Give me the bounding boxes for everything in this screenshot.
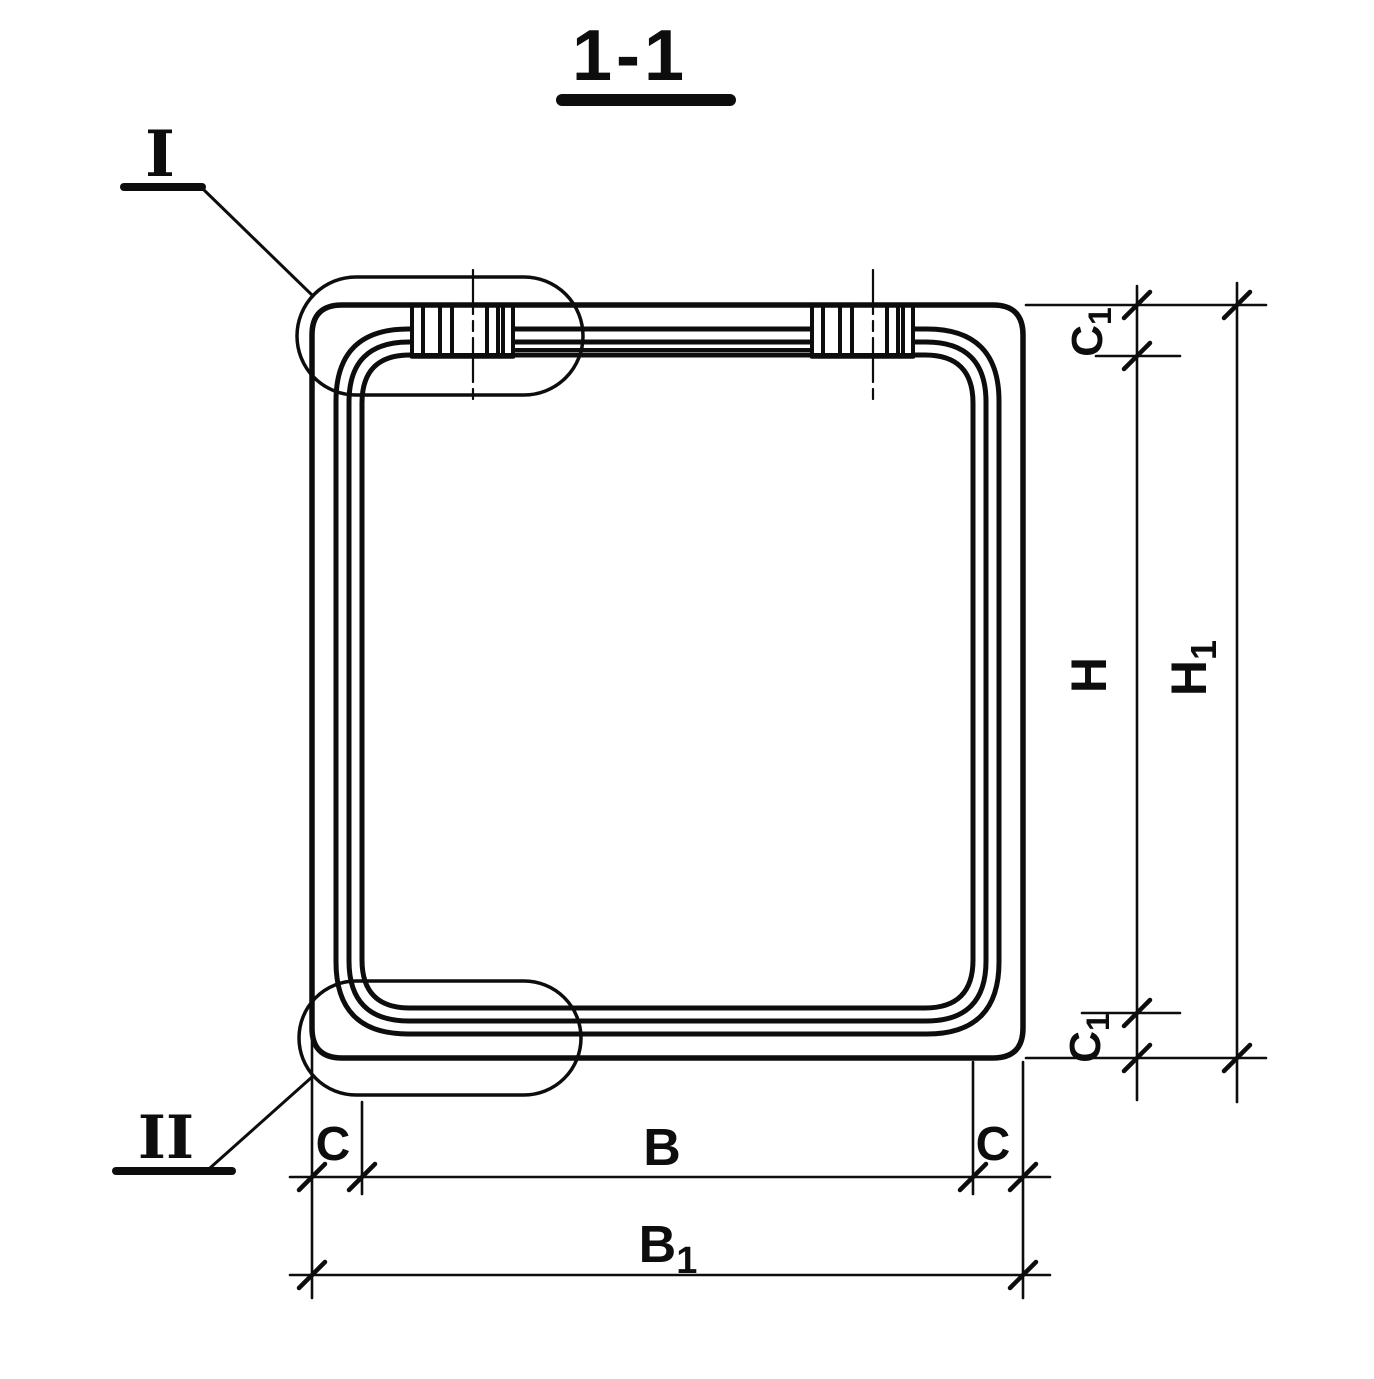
section-view <box>312 270 1023 1058</box>
detail-ii-leader <box>210 1077 312 1168</box>
dim-label-c-left: C <box>316 1118 351 1171</box>
detail-callout-ii: II <box>116 1077 312 1173</box>
inner-contour-near <box>336 329 999 1034</box>
dim-label-b: B <box>643 1119 681 1177</box>
dim-label-b1: B1 <box>639 1216 698 1282</box>
section-drawing: I II 1-1 C1 H <box>0 0 1374 1379</box>
dim-label-c1-top: C1 <box>1063 307 1118 357</box>
dim-label-h: H <box>1061 657 1117 693</box>
dim-label-h1: H1 <box>1161 640 1224 696</box>
horizontal-dimensions: C B C B1 <box>290 1030 1050 1298</box>
dim-label-c-right: C <box>976 1118 1011 1171</box>
view-title: 1-1 <box>556 16 736 106</box>
drawing-sheet: I II 1-1 C1 H <box>0 0 1374 1379</box>
vertical-dimensions: C1 H H1 C1 <box>1026 283 1266 1102</box>
view-title-text: 1-1 <box>572 16 688 96</box>
dim-label-c1-bottom: C1 <box>1061 1013 1116 1063</box>
inner-contour-far <box>362 355 973 1008</box>
outer-contour <box>312 305 1023 1058</box>
detail-ii-label: II <box>138 1103 194 1173</box>
inner-contour-mid <box>349 342 986 1021</box>
detail-callout-i: I <box>124 117 313 296</box>
detail-i-leader <box>204 190 313 296</box>
view-title-underline <box>556 94 736 106</box>
detail-i-label: I <box>145 117 175 192</box>
